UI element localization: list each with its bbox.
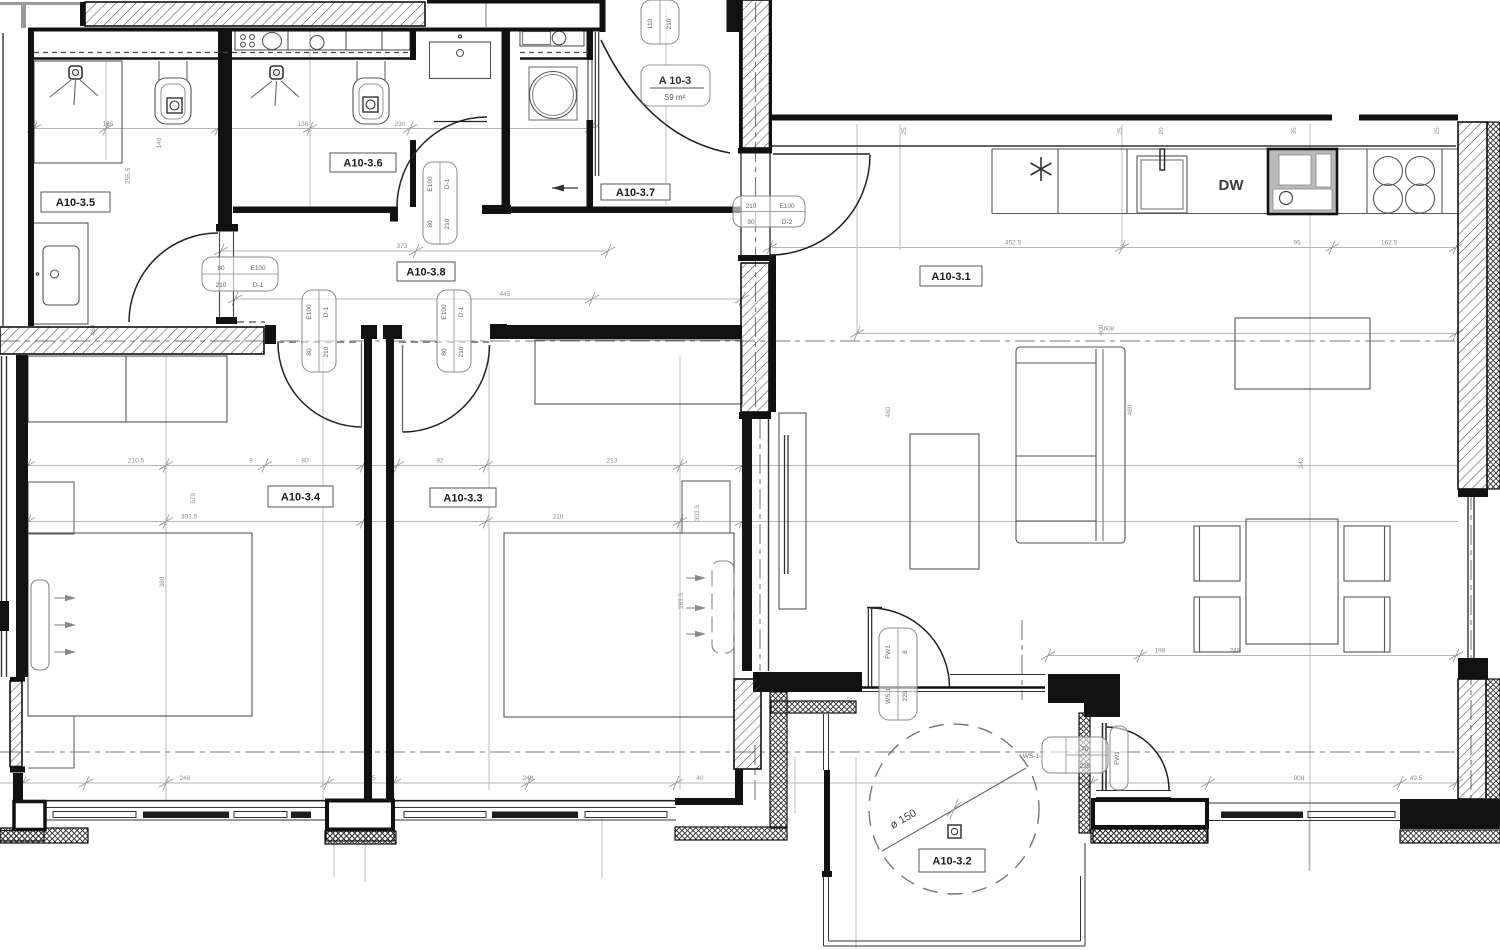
svg-text:FW1: FW1 xyxy=(1114,751,1121,765)
svg-text:213: 213 xyxy=(607,458,618,465)
svg-text:445: 445 xyxy=(500,291,511,298)
svg-text:210: 210 xyxy=(458,346,465,357)
svg-text:D-1: D-1 xyxy=(458,306,465,317)
svg-text:A10-3.4: A10-3.4 xyxy=(281,492,321,504)
svg-text:A10-3.7: A10-3.7 xyxy=(616,187,655,199)
svg-text:210: 210 xyxy=(553,514,564,521)
svg-text:908: 908 xyxy=(1294,775,1305,782)
svg-text:80: 80 xyxy=(441,348,448,356)
svg-text:90: 90 xyxy=(747,219,755,226)
svg-text:460: 460 xyxy=(885,406,892,417)
svg-text:283.5: 283.5 xyxy=(678,592,685,609)
svg-text:D-1: D-1 xyxy=(323,306,330,317)
svg-text:248: 248 xyxy=(523,775,534,782)
svg-text:9: 9 xyxy=(249,458,253,465)
svg-text:608: 608 xyxy=(1104,326,1115,333)
svg-text:452.5: 452.5 xyxy=(1005,240,1022,247)
svg-text:A10-3.3: A10-3.3 xyxy=(443,493,482,505)
svg-text:92: 92 xyxy=(436,458,444,465)
svg-text:49.5: 49.5 xyxy=(1410,775,1423,782)
svg-text:25: 25 xyxy=(1117,127,1124,135)
svg-text:8: 8 xyxy=(902,650,909,654)
svg-text:303.5: 303.5 xyxy=(181,514,198,521)
svg-text:E100: E100 xyxy=(441,304,448,320)
svg-text:FW1: FW1 xyxy=(885,645,892,659)
svg-text:229: 229 xyxy=(902,690,909,701)
svg-text:D-1: D-1 xyxy=(444,178,451,189)
svg-text:80: 80 xyxy=(427,220,434,228)
svg-text:E100: E100 xyxy=(427,176,434,192)
svg-text:A10-3.1: A10-3.1 xyxy=(931,271,970,283)
svg-text:210: 210 xyxy=(323,346,330,357)
svg-text:380: 380 xyxy=(159,576,166,587)
svg-text:198: 198 xyxy=(1155,648,1166,655)
svg-text:140: 140 xyxy=(156,137,163,148)
svg-text:20: 20 xyxy=(1158,127,1165,135)
svg-text:E100: E100 xyxy=(779,203,795,210)
svg-text:59 m²: 59 m² xyxy=(665,93,686,102)
svg-text:210: 210 xyxy=(444,218,451,229)
svg-text:A10-3.6: A10-3.6 xyxy=(343,158,382,170)
svg-text:80: 80 xyxy=(301,458,309,465)
svg-text:400: 400 xyxy=(1098,324,1105,335)
svg-text:D-2: D-2 xyxy=(782,219,793,226)
svg-text:136: 136 xyxy=(298,121,309,128)
svg-text:373: 373 xyxy=(397,243,408,250)
svg-text:A10-3.8: A10-3.8 xyxy=(406,267,445,279)
svg-text:80: 80 xyxy=(306,348,313,356)
svg-text:210.5: 210.5 xyxy=(128,458,145,465)
svg-text:210: 210 xyxy=(216,282,227,289)
svg-text:95: 95 xyxy=(1293,240,1301,247)
svg-text:248: 248 xyxy=(1230,648,1241,655)
svg-text:303.5: 303.5 xyxy=(694,504,701,521)
svg-text:DW: DW xyxy=(1219,177,1245,194)
svg-text:25: 25 xyxy=(1434,127,1441,135)
svg-text:210: 210 xyxy=(746,203,757,210)
svg-text:40: 40 xyxy=(696,775,704,782)
svg-text:25: 25 xyxy=(901,127,908,135)
svg-text:A10-3.2: A10-3.2 xyxy=(932,856,971,868)
svg-text:480: 480 xyxy=(1127,404,1134,415)
svg-text:D-1: D-1 xyxy=(253,282,264,289)
svg-text:579: 579 xyxy=(190,492,197,503)
svg-text:80: 80 xyxy=(217,265,225,272)
svg-text:229: 229 xyxy=(1080,763,1091,770)
svg-text:70: 70 xyxy=(1081,746,1089,753)
svg-text:255.5: 255.5 xyxy=(125,167,132,184)
svg-text:162.5: 162.5 xyxy=(1381,240,1398,247)
svg-text:A 10-3: A 10-3 xyxy=(659,75,692,87)
svg-text:WS.1: WS.1 xyxy=(885,688,892,704)
svg-text:230: 230 xyxy=(395,121,406,128)
svg-text:35: 35 xyxy=(1291,127,1298,135)
svg-text:E100: E100 xyxy=(250,265,266,272)
svg-text:WS-1-: WS-1- xyxy=(1023,753,1041,760)
svg-text:210: 210 xyxy=(666,18,673,29)
svg-text:248: 248 xyxy=(180,775,191,782)
svg-text:242: 242 xyxy=(1298,457,1305,468)
svg-text:E100: E100 xyxy=(306,304,313,320)
svg-text:110: 110 xyxy=(647,18,654,29)
svg-text:A10-3.5: A10-3.5 xyxy=(56,197,95,209)
svg-text:165: 165 xyxy=(103,121,114,128)
